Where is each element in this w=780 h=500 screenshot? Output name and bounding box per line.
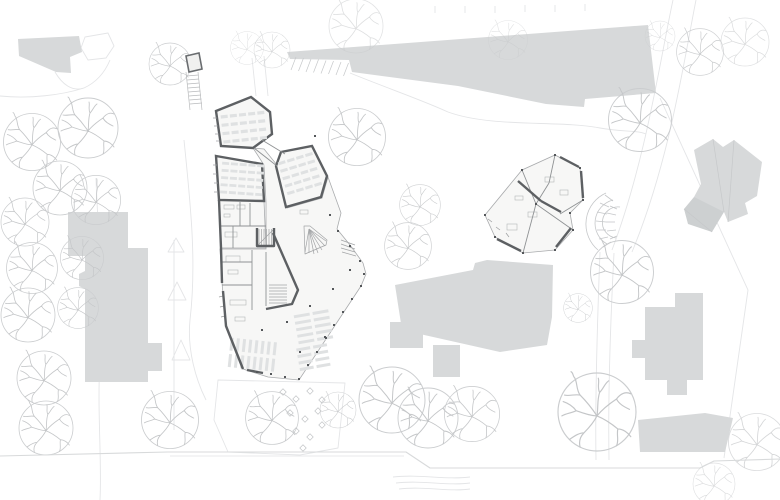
tree-icon (320, 391, 356, 428)
tree-icon (677, 28, 724, 76)
bike-racks (186, 72, 202, 110)
tree-icon (400, 184, 441, 225)
building-west-bump (79, 271, 85, 289)
tree-icon (246, 391, 299, 445)
tree-icon (721, 17, 769, 66)
tree-icon (17, 350, 71, 405)
tree-icon (329, 0, 383, 53)
tree-icon (359, 366, 425, 433)
tree-icon (1, 197, 49, 246)
tree-icon (33, 160, 87, 215)
tree-icon (1, 287, 55, 342)
tree-icon (6, 242, 57, 294)
site-plan-sheet (0, 0, 780, 500)
tree-icon (591, 239, 654, 303)
building-southeast-cross (632, 293, 703, 395)
shelter-structure (186, 53, 202, 72)
annex-footprint (485, 155, 583, 253)
terrace-tables (280, 388, 325, 451)
tree-icon (729, 413, 780, 471)
tree-icon (58, 97, 118, 158)
building-center-south-stem (433, 345, 460, 377)
tree-icon (231, 31, 264, 65)
bike-shelter (186, 53, 202, 72)
tree-icon (558, 372, 636, 451)
tree-icon (645, 21, 675, 52)
tree-icon (329, 108, 386, 166)
tree-icon (149, 42, 191, 85)
site-boundary (0, 452, 780, 468)
building-northwest (18, 36, 82, 73)
tree-icon (609, 87, 672, 151)
tree-icon (564, 293, 593, 322)
building-southeast-lower (638, 413, 733, 452)
tree-icon (142, 391, 199, 449)
tree-icon (19, 400, 73, 455)
tree-icon (385, 222, 432, 270)
tree-icon (254, 31, 290, 68)
tree-icon (444, 385, 499, 441)
building-center-south-left (390, 322, 423, 348)
drawing-area (0, 0, 780, 500)
building-north-band (287, 25, 656, 107)
tree-icon (398, 387, 458, 448)
site-plan-canvas (0, 0, 780, 500)
